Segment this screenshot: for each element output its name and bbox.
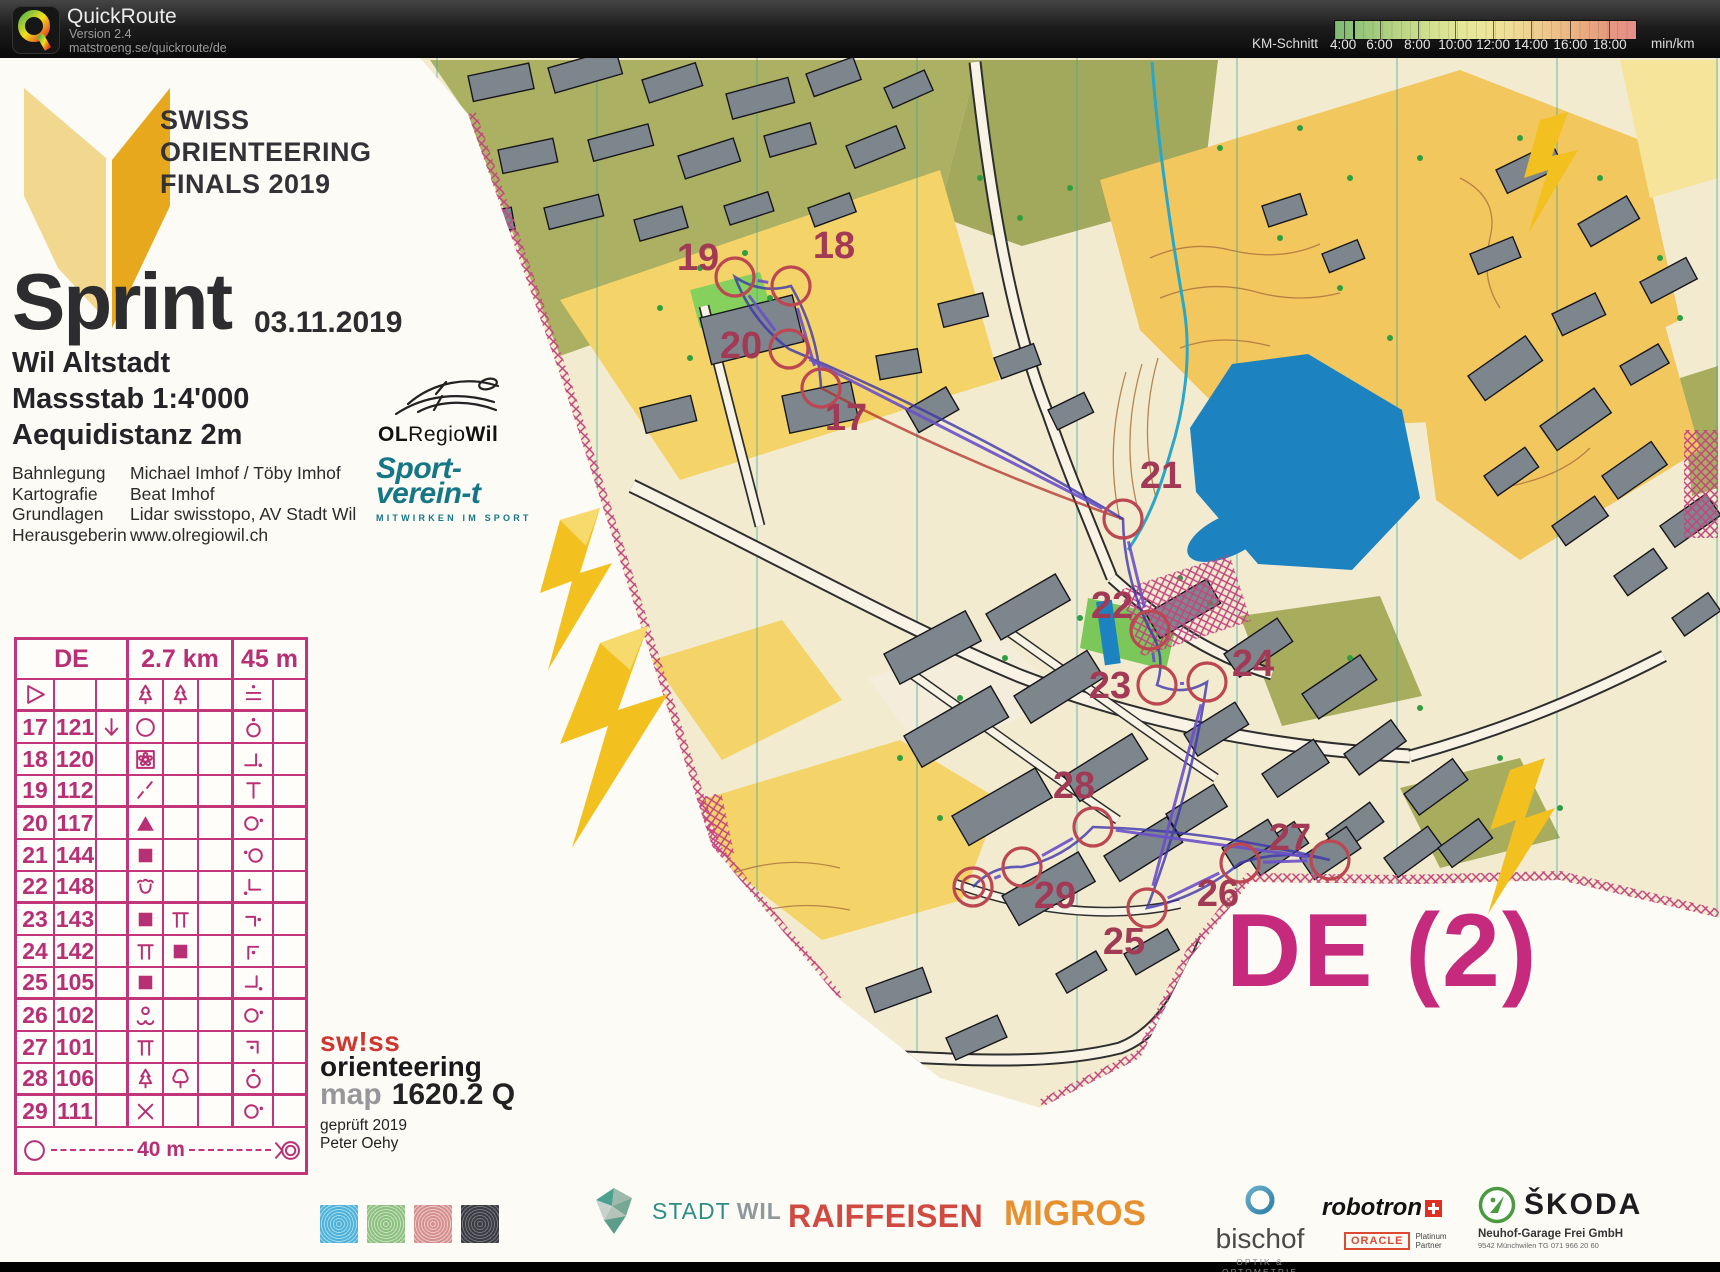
cd-col-d (129, 968, 164, 1000)
app-url: matstroeng.se/quickroute/de (69, 41, 227, 55)
cd-col-c (97, 840, 129, 872)
swiss-o-map-block: sw!ss orienteering map1620.2 Q geprüft 2… (320, 1026, 515, 1243)
sponsor-migros: MIGROS (1004, 1194, 1146, 1234)
cd-symbol-pi (168, 907, 193, 932)
reg-mark-black (461, 1205, 499, 1243)
runner-sketch-icon (378, 370, 528, 420)
control-number: 27 (1269, 817, 1311, 859)
cd-number: 29 (17, 1096, 55, 1128)
reg-mark-cyan (320, 1205, 358, 1243)
cd-number: 25 (17, 968, 55, 1000)
cd-symbol-square-filled (133, 843, 158, 868)
cd-symbol-tbar (241, 778, 266, 803)
cd-col-g (234, 680, 274, 712)
stadtwil-heart-icon (586, 1182, 644, 1240)
cd-col-h (274, 936, 305, 968)
cd-col-d (129, 936, 164, 968)
cd-col-g (234, 872, 274, 904)
cd-symbol-square-filled (168, 939, 193, 964)
robotron-cross-icon (1425, 1200, 1442, 1217)
cd-length: 2.7 km (129, 640, 234, 680)
cd-symbol-square-filled (133, 907, 158, 932)
cd-col-h (274, 968, 305, 1000)
cd-symbol-corner-18 (241, 747, 266, 772)
titlebar: QuickRoute Version 2.4 matstroeng.se/qui… (0, 0, 1720, 58)
cd-number: 19 (17, 776, 55, 808)
cd-col-f (199, 1096, 234, 1128)
map-scale: Massstab 1:4'000 (12, 383, 249, 416)
cd-col-c (97, 936, 129, 968)
cd-symbol-corner-23 (241, 907, 266, 932)
cd-col-h (274, 840, 305, 872)
sportverein-logo: Sport- verein-t MITWIRKEN IM SPORT (376, 456, 532, 523)
control-number: 28 (1053, 765, 1095, 807)
cd-code: 102 (55, 1000, 97, 1032)
control-number: 17 (825, 397, 867, 439)
cd-symbol-triangle-filled (133, 811, 158, 836)
cd-symbol-square-filled (133, 970, 158, 995)
cd-number: 26 (17, 1000, 55, 1032)
race-location: Wil Altstadt (12, 347, 170, 380)
cd-col-f (199, 776, 234, 808)
cd-col-g (234, 936, 274, 968)
cd-symbol-spruce (133, 682, 158, 707)
race-title: Sprint (12, 256, 231, 348)
cd-col-e (164, 1000, 199, 1032)
cd-col-d (129, 904, 164, 936)
cd-code: 111 (55, 1096, 97, 1128)
cd-col-h (274, 680, 305, 712)
cd-col-e (164, 1096, 199, 1128)
cd-code (55, 680, 97, 712)
app-version: Version 2.4 (69, 27, 132, 41)
cd-symbol-corner-24 (241, 939, 266, 964)
cd-col-e (164, 840, 199, 872)
cd-col-f (199, 1064, 234, 1096)
cd-symbol-pi (133, 1035, 158, 1060)
pace-tick-label: 14:00 (1514, 37, 1548, 52)
cd-course: DE (17, 640, 129, 680)
cd-col-h (274, 808, 305, 840)
cd-col-d (129, 1096, 164, 1128)
cd-col-g (234, 1064, 274, 1096)
sponsor-bischof: bischof OPTIK & OPTOMETRIE (1200, 1164, 1320, 1272)
cd-col-c (97, 1064, 129, 1096)
swiss-o-map-label: map (320, 1078, 382, 1111)
cd-number: 21 (17, 840, 55, 872)
cd-col-g (234, 904, 274, 936)
olregiowil-name: OLRegioWil (378, 423, 538, 447)
cd-col-g (234, 776, 274, 808)
cd-number: 27 (17, 1032, 55, 1064)
cd-col-d (129, 808, 164, 840)
cd-symbol-circle (133, 715, 158, 740)
cd-number: 18 (17, 744, 55, 776)
cd-symbol-circle-dot-right (241, 1003, 266, 1028)
credit-row: BahnlegungMichael Imhof / Töby Imhof (12, 463, 356, 484)
cd-col-c (97, 968, 129, 1000)
reg-mark-green (367, 1205, 405, 1243)
cd-col-e (164, 1032, 199, 1064)
credit-row: Herausgeberinwww.olregiowil.ch (12, 525, 356, 546)
map-checked: geprüft 2019 (320, 1117, 515, 1135)
pace-tick-label: 8:00 (1404, 37, 1430, 52)
pace-unit-label: min/km (1651, 36, 1695, 51)
course-leg (1153, 653, 1154, 662)
control-number: 21 (1140, 455, 1182, 497)
cd-col-e (164, 776, 199, 808)
cd-col-c (97, 1096, 129, 1128)
map-number: 1620.2 Q (392, 1078, 515, 1111)
control-number: 19 (677, 237, 719, 279)
cd-symbol-circle-dot-above (241, 715, 266, 740)
pace-tick-label: 10:00 (1438, 37, 1472, 52)
olregiowil-logo: OLRegioWil (378, 370, 538, 447)
cd-col-g (234, 840, 274, 872)
control-number: 22 (1091, 585, 1133, 627)
cd-symbol-spruce (168, 682, 193, 707)
cd-symbol-knolls (133, 1003, 158, 1028)
cd-col-c (97, 904, 129, 936)
pace-tick-label: 16:00 (1553, 37, 1587, 52)
cd-col-h (274, 1000, 305, 1032)
cd-col-g (234, 1000, 274, 1032)
cd-symbol-spruce (133, 1066, 158, 1091)
cd-col-g (234, 744, 274, 776)
cd-col-c (97, 776, 129, 808)
control-number: 23 (1089, 665, 1131, 707)
app-title: QuickRoute (67, 5, 177, 29)
cd-col-e (164, 872, 199, 904)
cd-symbol-start (23, 682, 48, 707)
cd-col-h (274, 776, 305, 808)
cd-code: 117 (55, 808, 97, 840)
pace-tick-label: 12:00 (1476, 37, 1510, 52)
cd-col-c (97, 1000, 129, 1032)
cd-code: 101 (55, 1032, 97, 1064)
cd-col-e (164, 968, 199, 1000)
cd-number: 22 (17, 872, 55, 904)
bischof-b-icon (1242, 1164, 1278, 1216)
course-leg (1263, 861, 1307, 862)
cd-symbol-dashed-slash (133, 778, 158, 803)
cd-col-h (274, 744, 305, 776)
race-date: 03.11.2019 (254, 306, 403, 340)
cd-col-c (97, 1032, 129, 1064)
reg-mark-red (414, 1205, 452, 1243)
cd-symbol-arrow-down (99, 715, 124, 740)
cd-col-e (164, 936, 199, 968)
control-description-card: DE2.7 km45 m1712118120191122011721144221… (14, 637, 308, 1175)
pace-legend-label: KM-Schnitt (1150, 36, 1318, 51)
cd-symbol-circle-dot-right (241, 1099, 266, 1124)
cd-col-f (199, 872, 234, 904)
cd-code: 121 (55, 712, 97, 744)
cd-symbol-fountain (133, 874, 158, 899)
cd-climb: 45 m (234, 640, 305, 680)
cd-code: 106 (55, 1064, 97, 1096)
map-equidistance: Aequidistanz 2m (12, 419, 242, 452)
pace-tick-label: 18:00 (1593, 37, 1627, 52)
pace-tick-label: 6:00 (1366, 37, 1392, 52)
quickroute-logo-icon (12, 6, 60, 54)
map-paper: 17181920212223242526272829 SWISS ORIENTE… (0, 58, 1720, 1262)
cd-code: 112 (55, 776, 97, 808)
control-number: 24 (1232, 643, 1274, 685)
cd-symbol-corner-27 (241, 1035, 266, 1060)
cd-col-f (199, 840, 234, 872)
cd-col-f (199, 808, 234, 840)
sponsor-stadtwil: STADT WIL (586, 1182, 782, 1240)
cd-col-d (129, 776, 164, 808)
cd-col-c (97, 872, 129, 904)
cd-col-g (234, 1032, 274, 1064)
map-credits: BahnlegungMichael Imhof / Töby ImhofKart… (12, 463, 356, 545)
cd-col-h (274, 872, 305, 904)
cd-symbol-flower (133, 747, 158, 772)
cd-col-d (129, 680, 164, 712)
cd-col-e (164, 680, 199, 712)
cd-col-c (97, 680, 129, 712)
cd-col-f (199, 1032, 234, 1064)
skoda-logo-icon (1478, 1186, 1516, 1224)
cd-col-e (164, 1064, 199, 1096)
cd-symbol-corner-22 (241, 874, 266, 899)
credit-row: GrundlagenLidar swisstopo, AV Stadt Wil (12, 504, 356, 525)
cd-col-c (97, 744, 129, 776)
cd-col-g (234, 712, 274, 744)
cd-symbol-pi (133, 939, 158, 964)
cd-col-f (199, 712, 234, 744)
cd-symbol-cross (133, 1099, 158, 1124)
cd-code: 144 (55, 840, 97, 872)
quickroute-window: QuickRoute Version 2.4 matstroeng.se/qui… (0, 0, 1720, 1272)
cd-number: 17 (17, 712, 55, 744)
sponsor-skoda: ŠKODA Neuhof-Garage Frei GmbH 9542 Münch… (1478, 1186, 1642, 1250)
cd-col-f (199, 680, 234, 712)
cd-symbol-deciduous (168, 1066, 193, 1091)
cd-col-d (129, 712, 164, 744)
cd-symbol-dot-circle-left (241, 843, 266, 868)
cd-col-h (274, 712, 305, 744)
cd-col-g (234, 968, 274, 1000)
cd-col-h (274, 904, 305, 936)
control-number: 18 (813, 225, 855, 267)
cd-start-cell (17, 680, 55, 712)
cd-col-e (164, 712, 199, 744)
cd-number: 23 (17, 904, 55, 936)
cd-col-g (234, 1096, 274, 1128)
cd-col-d (129, 840, 164, 872)
cd-col-e (164, 744, 199, 776)
cd-code: 142 (55, 936, 97, 968)
print-registration-marks (320, 1205, 515, 1243)
cd-col-d (129, 1032, 164, 1064)
event-title: SWISS ORIENTEERING FINALS 2019 (160, 104, 372, 200)
cd-symbol-between (241, 682, 266, 707)
cd-col-f (199, 968, 234, 1000)
control-number: 25 (1103, 921, 1145, 963)
cd-col-f (199, 904, 234, 936)
cd-col-h (274, 1064, 305, 1096)
control-number: 29 (1034, 875, 1076, 917)
cd-col-g (234, 808, 274, 840)
cd-symbol-circle-dot-right (241, 811, 266, 836)
cd-col-h (274, 1096, 305, 1128)
cd-col-d (129, 744, 164, 776)
cd-col-f (199, 936, 234, 968)
cd-number: 20 (17, 808, 55, 840)
cd-number: 24 (17, 936, 55, 968)
cd-col-f (199, 1000, 234, 1032)
sponsor-raiffeisen: RAIFFEISEN (788, 1198, 983, 1235)
cd-symbol-corner-25 (241, 970, 266, 995)
pace-tick-label: 4:00 (1330, 37, 1356, 52)
cd-code: 105 (55, 968, 97, 1000)
cd-col-f (199, 744, 234, 776)
cd-symbol-circle-dot-above (241, 1066, 266, 1091)
cd-col-d (129, 872, 164, 904)
cd-code: 148 (55, 872, 97, 904)
cd-code: 143 (55, 904, 97, 936)
credit-row: KartografieBeat Imhof (12, 484, 356, 505)
map-checker: Peter Oehy (320, 1135, 515, 1153)
cd-col-d (129, 1064, 164, 1096)
cd-col-c (97, 712, 129, 744)
cd-col-d (129, 1000, 164, 1032)
course-leg (758, 281, 769, 283)
cd-finish-row: 40 m (17, 1128, 305, 1172)
cd-col-e (164, 904, 199, 936)
cd-col-e (164, 808, 199, 840)
cd-number: 28 (17, 1064, 55, 1096)
cd-col-h (274, 1032, 305, 1064)
sponsor-robotron: robotron ORACLE PlatinumPartner (1322, 1194, 1447, 1250)
cd-col-c (97, 808, 129, 840)
course-class-label: DE (2) (1226, 892, 1538, 1011)
cd-code: 120 (55, 744, 97, 776)
control-number: 20 (720, 325, 762, 367)
